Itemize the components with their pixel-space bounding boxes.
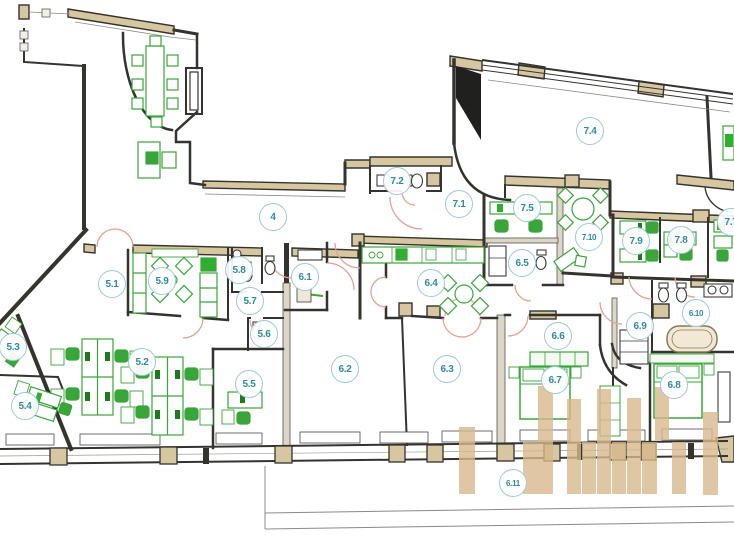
room-label-5-5: 5.5 [235,370,263,398]
toilet-6-5 [536,257,546,270]
closet-band-6-8 [650,354,714,363]
room-label-7-5: 7.5 [513,194,541,222]
stair-shaft [456,66,481,140]
room-label-6-7: 6.7 [541,366,569,394]
top-left-beam [68,9,174,34]
floor-plan-drawing [0,0,734,535]
cabinet-6-5 [489,246,506,276]
room-label-5-8: 5.8 [225,256,253,284]
room-label-5-2: 5.2 [128,348,156,376]
conference-table [132,36,178,127]
room-label-5-6: 5.6 [250,320,278,348]
room-label-7-1: 7.1 [445,190,473,218]
room-label-7-2: 7.2 [383,167,411,195]
desk-5-5 [222,392,262,424]
room-label-5-7: 5.7 [236,287,264,315]
room-label-6-2: 6.2 [331,355,359,383]
bathtub [667,326,717,352]
wardrobe-side-6-8 [718,372,730,422]
column-post [19,5,29,19]
kitchen-counter-6-4 [362,247,484,263]
room-label-7-8: 7.8 [667,226,695,254]
wardrobe-6-6 [530,352,588,366]
room-label-6-4: 6.4 [417,269,445,297]
room-label-6-6: 6.6 [544,322,572,350]
toilet-6-10 [659,288,669,302]
room-label-6-11: 6.11 [499,469,527,497]
room-label-5-3: 5.3 [0,333,27,361]
dining-table-6-4 [440,275,489,315]
room-label-5-4: 5.4 [11,392,39,420]
room-label-7-9: 7.9 [622,227,650,255]
room-label-5-1: 5.1 [98,270,126,298]
room-label-6-5: 6.5 [508,249,536,277]
room-label-7-4: 7.4 [576,117,604,145]
toilet-5-8b [265,262,275,275]
room-label-7-10: 7.10 [575,223,603,251]
room-label-6-8: 6.8 [660,371,688,399]
floor-plan-page: 45.15.25.35.45.55.65.75.85.96.16.26.36.4… [0,0,734,535]
room-label-5-9: 5.9 [148,267,176,295]
room-label-6-10: 6.10 [682,299,710,327]
room-label-6-1: 6.1 [291,263,319,291]
room-label-6-9: 6.9 [626,312,654,340]
desk-7-4-partial [723,126,734,160]
room-label-6-3: 6.3 [433,355,461,383]
bidet-6-10 [677,288,687,302]
balcony [265,466,734,529]
room-label-4: 4 [259,203,287,231]
reception-desk [138,142,176,178]
